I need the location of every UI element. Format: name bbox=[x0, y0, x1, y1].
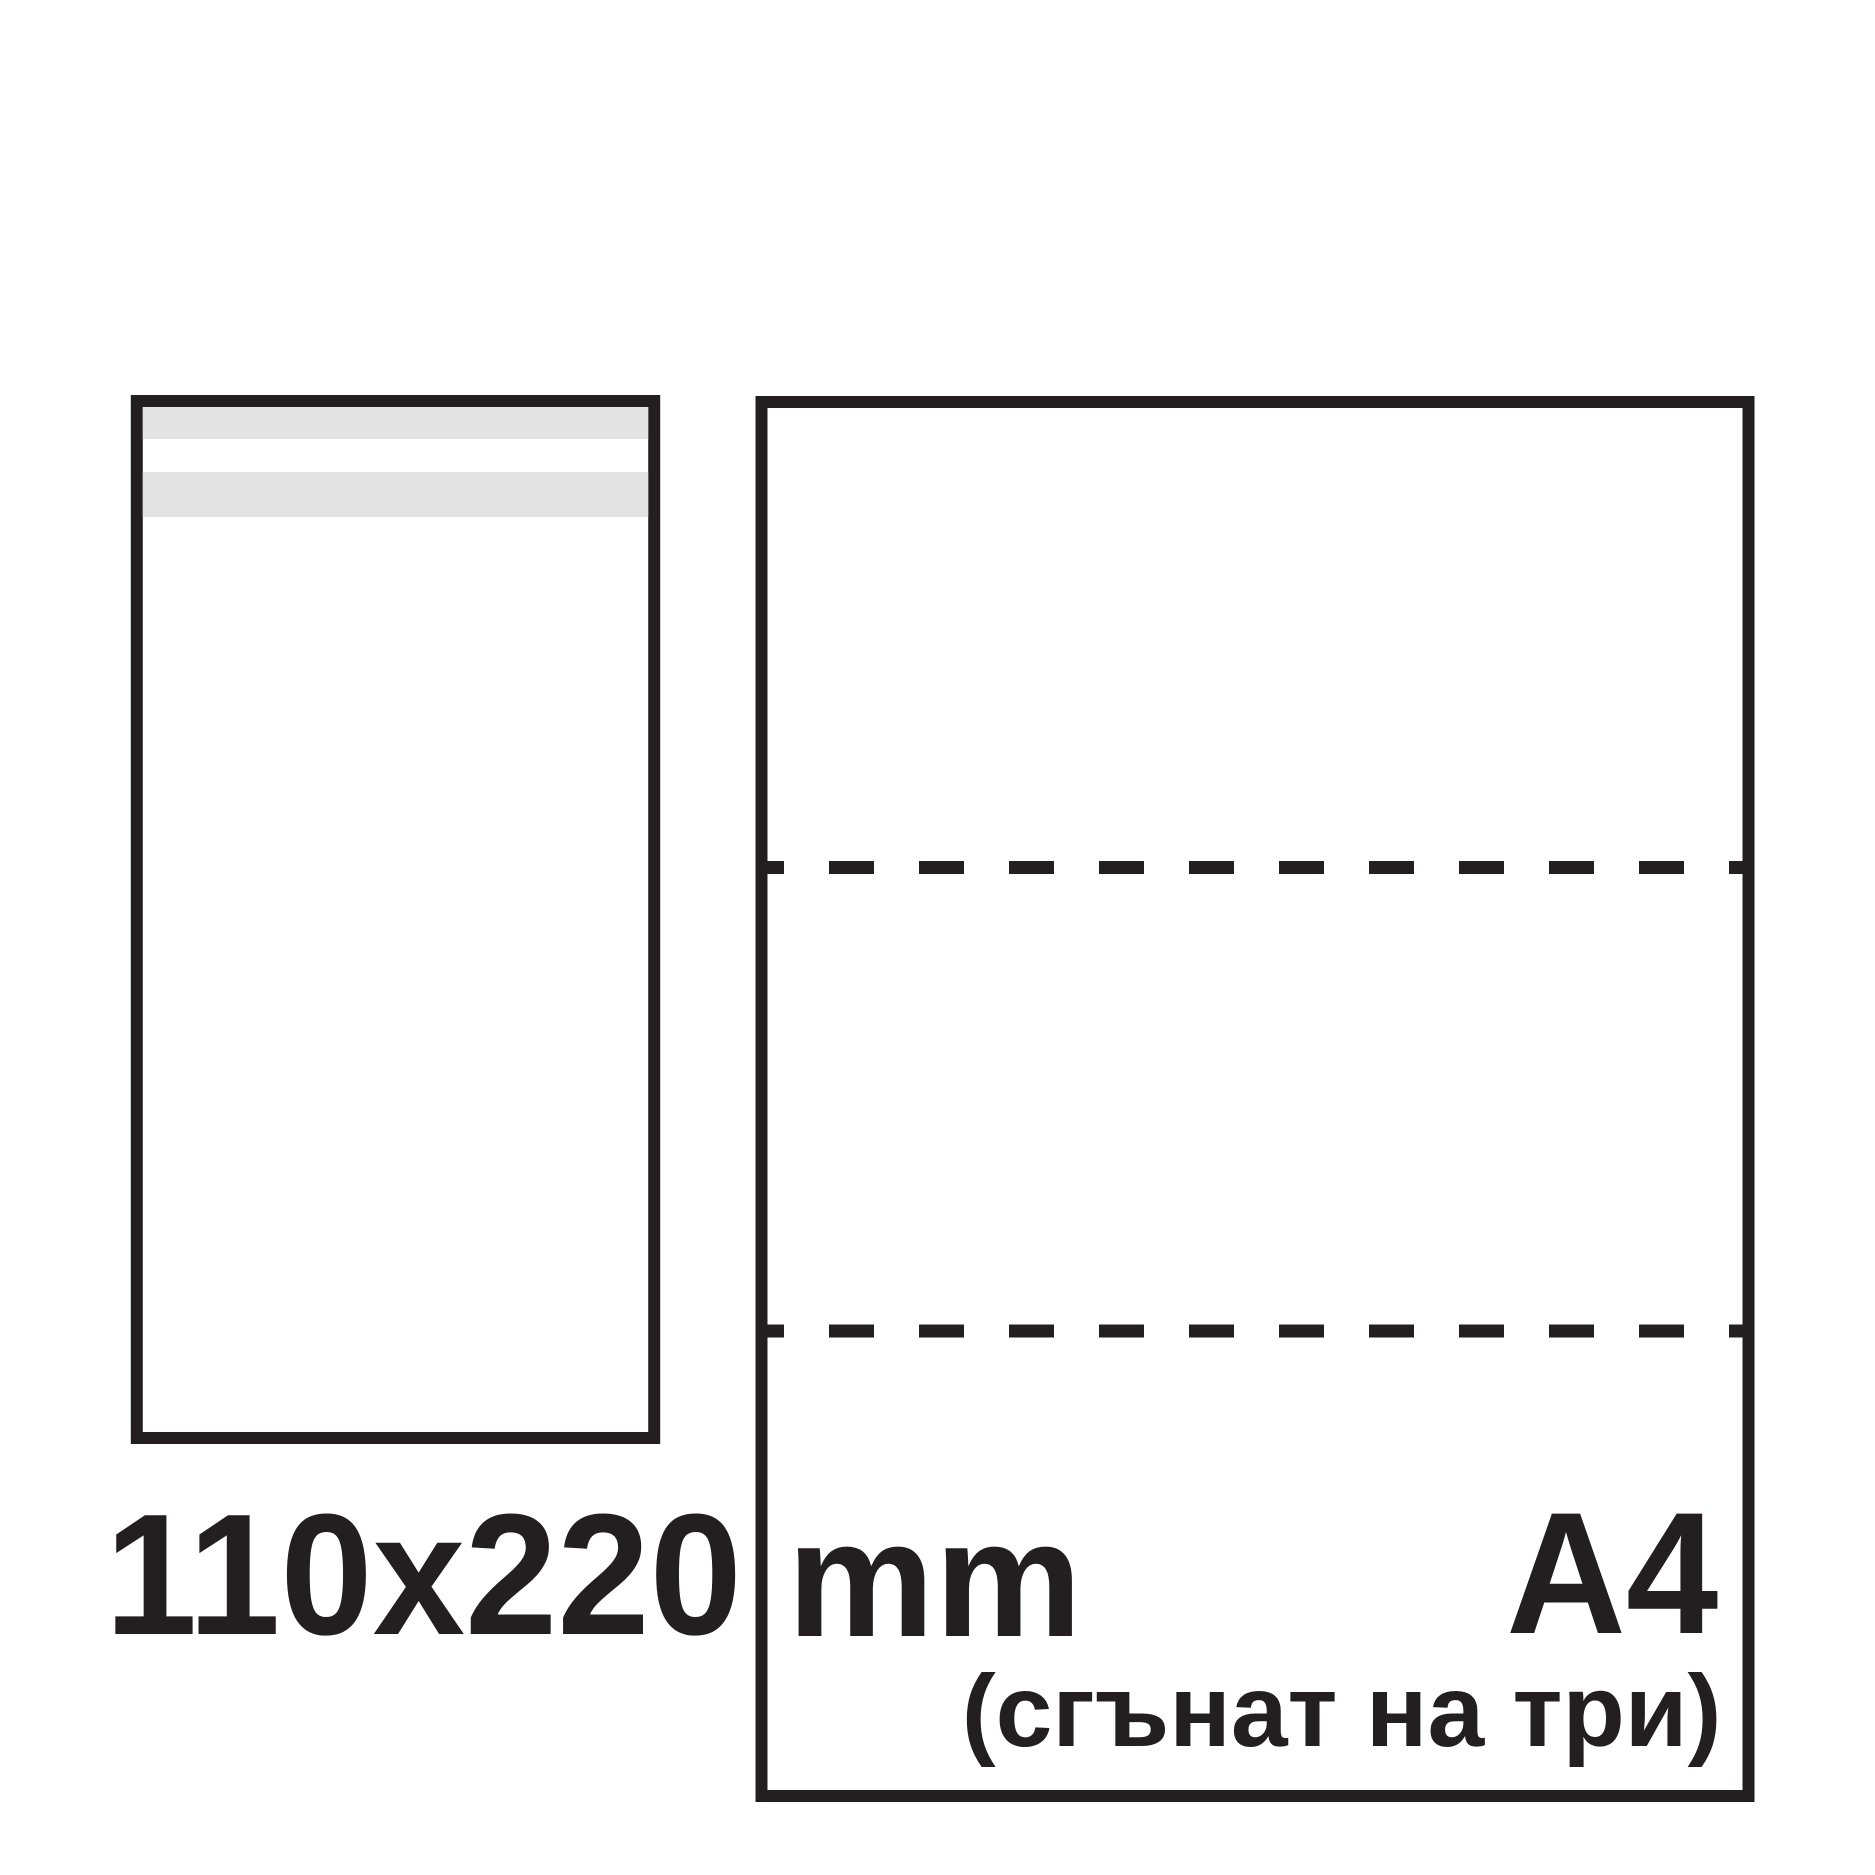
svg-text:mm: mm bbox=[787, 1487, 1082, 1672]
svg-text:110x220: 110x220 bbox=[105, 1478, 742, 1671]
svg-text:(сгънат на три): (сгънат на три) bbox=[962, 1654, 1722, 1768]
svg-text:A4: A4 bbox=[1506, 1476, 1718, 1670]
